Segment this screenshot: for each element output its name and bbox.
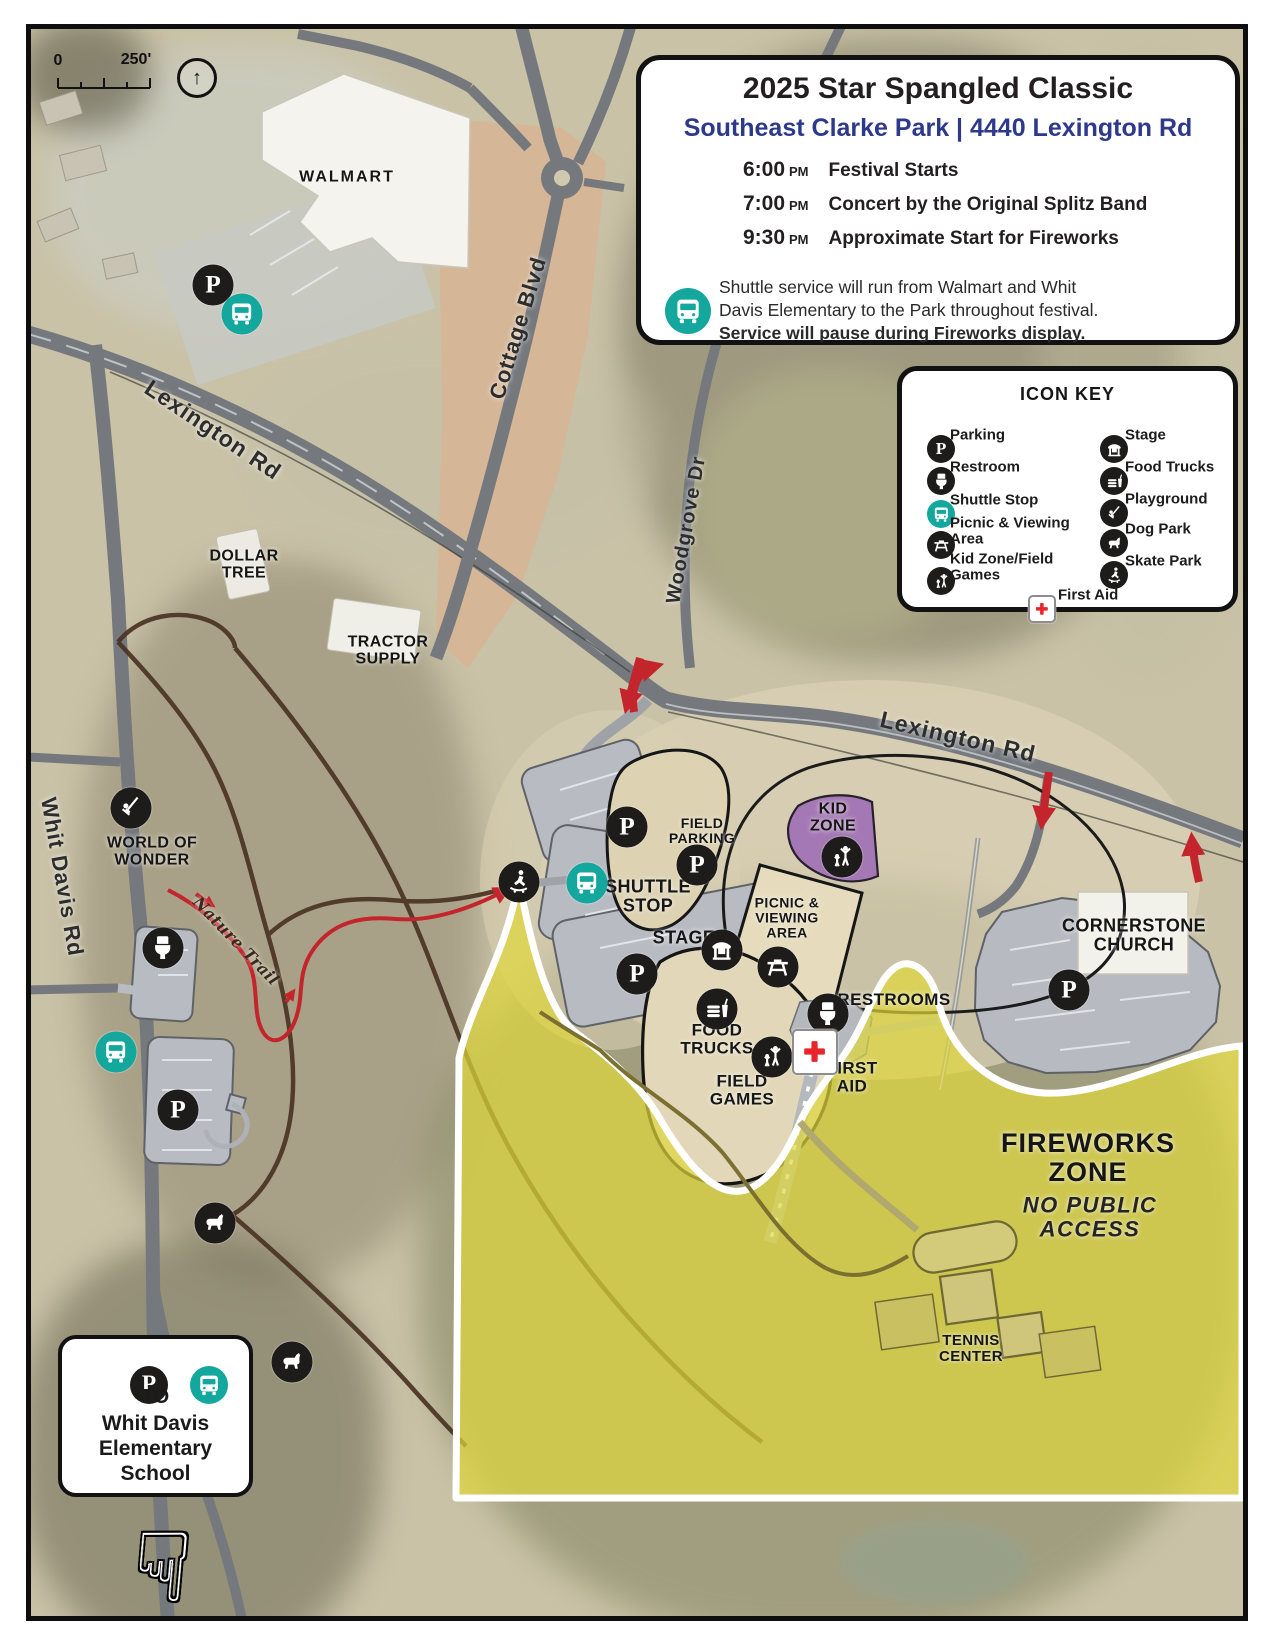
picnic-icon — [758, 947, 799, 988]
scale-distance: 250' — [121, 51, 152, 69]
cottage-blvd-road — [515, 24, 557, 160]
schedule-row: 9:30PMApproximate Start for Fireworks — [693, 226, 1147, 260]
key-label-dog: Dog Park — [1125, 521, 1191, 537]
key-label-picnic: Picnic & Viewing Area — [950, 516, 1070, 547]
aerial-patch — [26, 24, 150, 130]
key-label-stage: Stage — [1125, 427, 1166, 443]
parking-icon: P — [617, 954, 658, 995]
label-restrooms: RESTROOMS — [837, 991, 950, 1009]
label-tractor-supply: TRACTORSUPPLY — [348, 634, 429, 669]
parking-icon: P — [677, 845, 718, 886]
shuttle-icon — [222, 294, 263, 335]
key-label-firstaid: First Aid — [1058, 587, 1118, 603]
title-panel: 2025 Star Spangled Classic Southeast Cla… — [636, 55, 1240, 345]
shuttle-icon — [96, 1032, 137, 1073]
label-shuttle-stop: SHUTTLESTOP — [605, 878, 691, 917]
key-label-playground: Playground — [1125, 491, 1208, 507]
label-kid-zone: KIDZONE — [810, 801, 856, 836]
event-location: Southeast Clarke Park | 4440 Lexington R… — [641, 114, 1235, 143]
event-title: 2025 Star Spangled Classic — [641, 72, 1235, 106]
label-tennis-center: TENNISCENTER — [939, 1333, 1003, 1365]
stage-icon — [1100, 435, 1128, 463]
dog-icon — [272, 1342, 313, 1383]
shuttle-icon — [567, 863, 608, 904]
restroom-icon — [143, 928, 184, 969]
icon-key-title: ICON KEY — [902, 384, 1233, 405]
aerial-patch — [240, 330, 660, 570]
skate-icon — [1100, 561, 1128, 589]
firstaid-icon — [1028, 595, 1056, 623]
pond — [840, 1520, 1030, 1605]
firstaid-icon — [792, 1029, 838, 1075]
roundabout — [541, 157, 583, 199]
label-no-public-access: NO PUBLIC ACCESS — [998, 1193, 1183, 1241]
label-walmart: WALMART — [299, 168, 395, 185]
parking-icon: P — [607, 807, 648, 848]
key-label-skate: Skate Park — [1125, 553, 1202, 569]
label-world-of-wonder: WORLD OFWONDER — [107, 835, 197, 870]
key-label-restroom: Restroom — [950, 459, 1020, 475]
shuttle-note-bold: Service will pause during Fireworks disp… — [719, 323, 1085, 343]
aerial-patch — [420, 880, 1240, 1621]
dog-icon — [1100, 529, 1128, 557]
label-fireworks-zone: FIREWORKSZONE — [1001, 1129, 1175, 1187]
map-world: WALMARTDOLLARTREETRACTORSUPPLYLexington … — [26, 24, 1248, 1621]
event-schedule: 6:00PMFestival Starts7:00PMConcert by th… — [693, 158, 1147, 260]
label-dollar-tree: DOLLARTREE — [209, 548, 278, 583]
kid-icon — [752, 1037, 793, 1078]
key-label-kid: Kid Zone/Field Games — [950, 552, 1053, 583]
playground-icon — [111, 788, 152, 829]
key-label-food: Food Trucks — [1125, 459, 1214, 475]
schedule-row: 6:00PMFestival Starts — [693, 158, 1147, 192]
map-viewport: WALMARTDOLLARTREETRACTORSUPPLYLexington … — [26, 24, 1248, 1621]
shuttle-note: Shuttle service will run from Walmart an… — [719, 276, 1224, 345]
label-field-parking: FIELDPARKING — [669, 816, 735, 846]
food-icon — [697, 989, 738, 1030]
stage-icon — [702, 930, 743, 971]
shuttle-icon — [665, 288, 711, 334]
label-cornerstone-church: CORNERSTONECHURCH — [1062, 917, 1206, 956]
parking-icon: P — [1049, 970, 1090, 1011]
school-sign-panel: P TO Whit DavisElementarySchool — [58, 1335, 253, 1497]
key-label-parking: Parking — [950, 427, 1005, 443]
label-picnic-viewing-area: PICNIC &VIEWINGAREA — [755, 895, 820, 940]
label-lexington-rd-east: Lexington Rd — [878, 707, 1038, 767]
kid-icon — [822, 837, 863, 878]
food-icon — [1100, 467, 1128, 495]
key-label-shuttle: Shuttle Stop — [950, 492, 1038, 508]
label-field-games: FIELDGAMES — [710, 1073, 774, 1110]
north-arrow-icon: ↑ — [177, 58, 217, 98]
schedule-row: 7:00PMConcert by the Original Splitz Ban… — [693, 192, 1147, 226]
sign-school-name: Whit DavisElementarySchool — [62, 1411, 249, 1486]
playground-icon — [1100, 499, 1128, 527]
hand-pointer-icon: ☟ — [129, 1518, 195, 1618]
parking-lot — [518, 736, 663, 865]
parking-icon: P — [158, 1090, 199, 1131]
icon-key-panel: ICON KEY PParkingRestroomShuttle StopPic… — [897, 366, 1238, 612]
traffic-arrows — [627, 658, 1199, 882]
dog-icon — [195, 1203, 236, 1244]
sign-to-label: TO — [62, 1386, 249, 1409]
scale-zero: 0 — [54, 52, 63, 70]
skate-icon — [499, 862, 540, 903]
